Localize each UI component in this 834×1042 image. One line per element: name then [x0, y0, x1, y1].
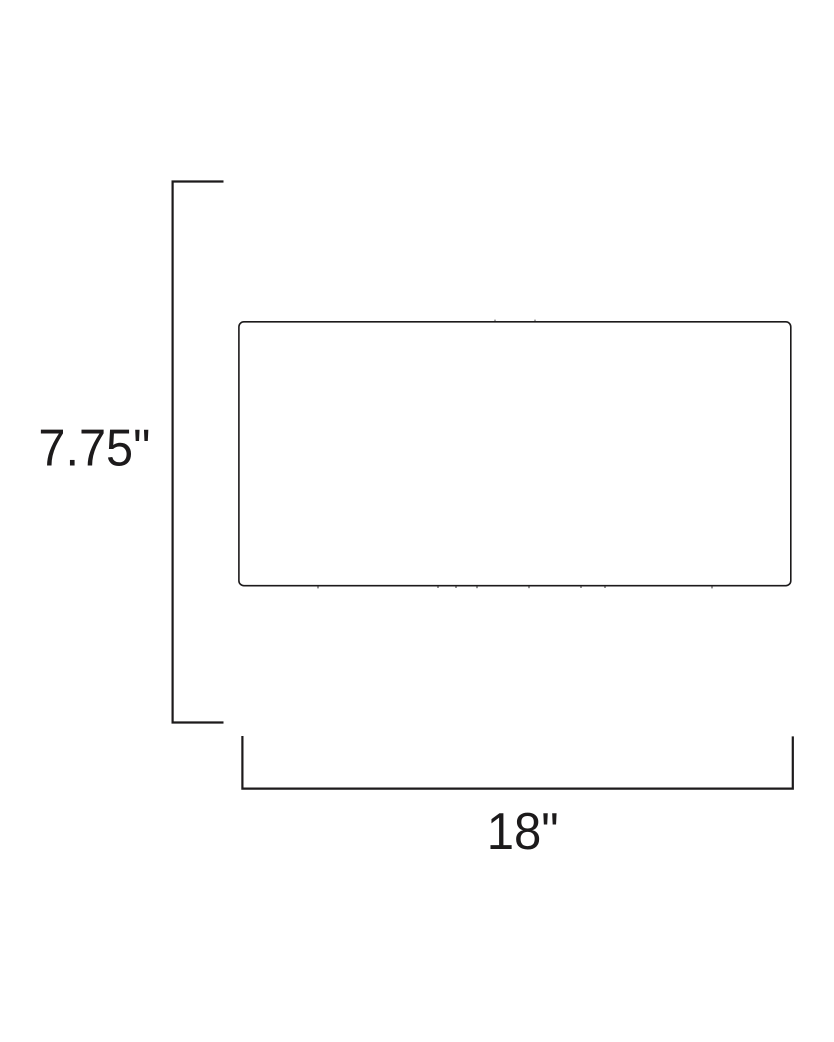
svg-text:7.75": 7.75" — [38, 420, 150, 478]
svg-text:18": 18" — [487, 803, 559, 861]
